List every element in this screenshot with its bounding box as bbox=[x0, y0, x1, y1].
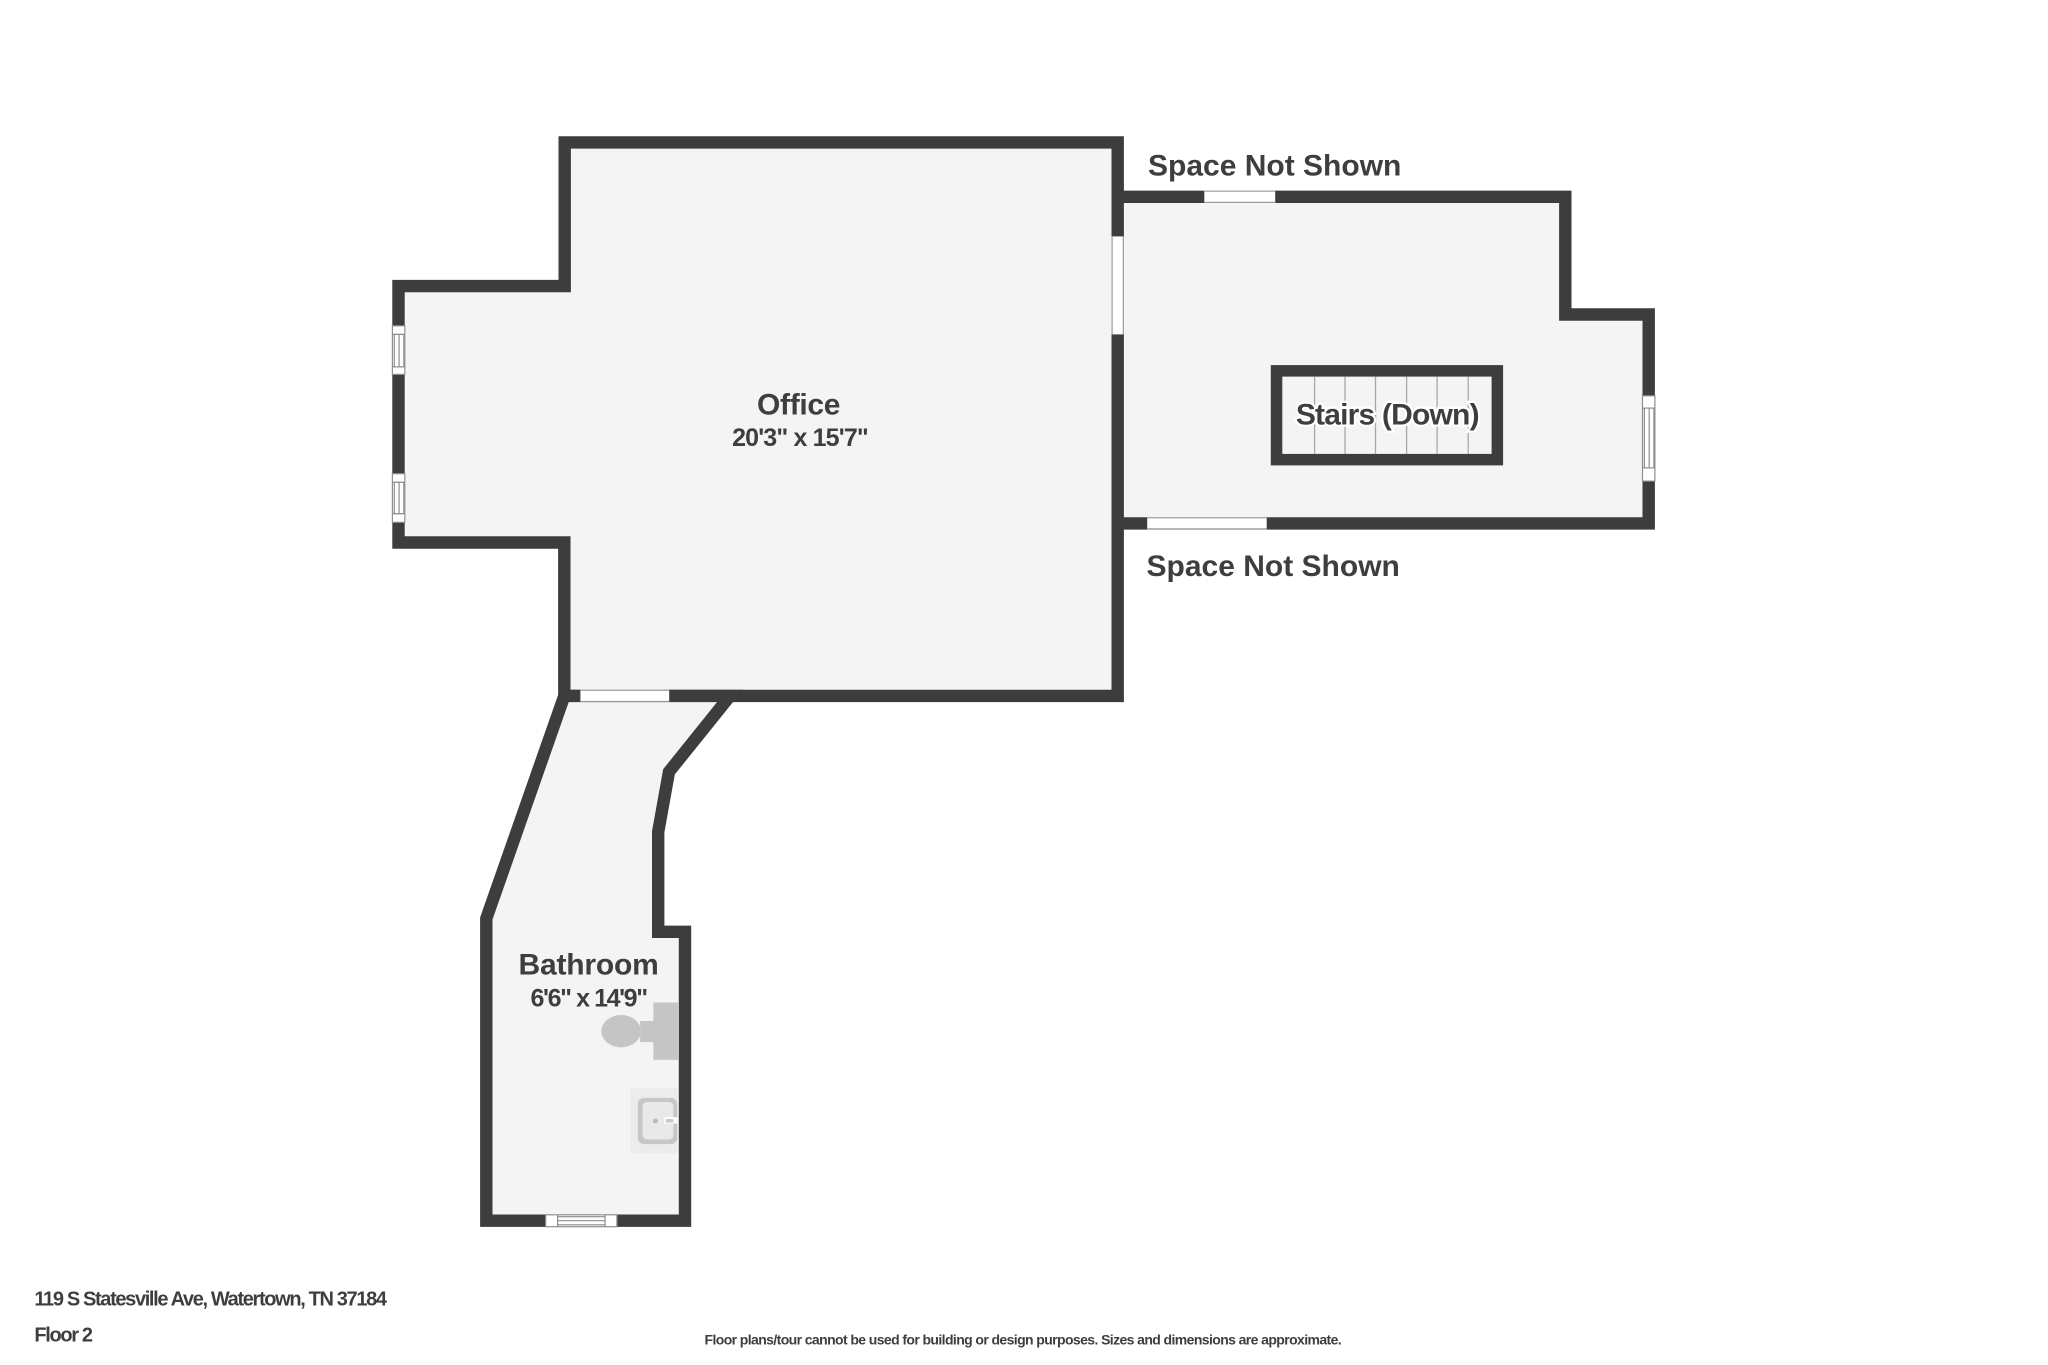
svg-text:Office: Office bbox=[757, 388, 840, 421]
svg-text:Floor plans/tour cannot be use: Floor plans/tour cannot be used for buil… bbox=[705, 1332, 1342, 1348]
svg-text:Bathroom: Bathroom bbox=[519, 948, 659, 981]
svg-text:Space Not Shown: Space Not Shown bbox=[1148, 149, 1401, 182]
svg-text:119 S Statesville Ave, Waterto: 119 S Statesville Ave, Watertown, TN 371… bbox=[34, 1289, 387, 1311]
svg-text:6'6" x 14'9": 6'6" x 14'9" bbox=[531, 985, 648, 1013]
svg-text:Space Not Shown: Space Not Shown bbox=[1147, 550, 1400, 583]
svg-text:Floor 2: Floor 2 bbox=[34, 1325, 92, 1347]
svg-text:Stairs (Down): Stairs (Down) bbox=[1296, 399, 1479, 432]
svg-text:20'3" x 15'7": 20'3" x 15'7" bbox=[732, 424, 868, 452]
